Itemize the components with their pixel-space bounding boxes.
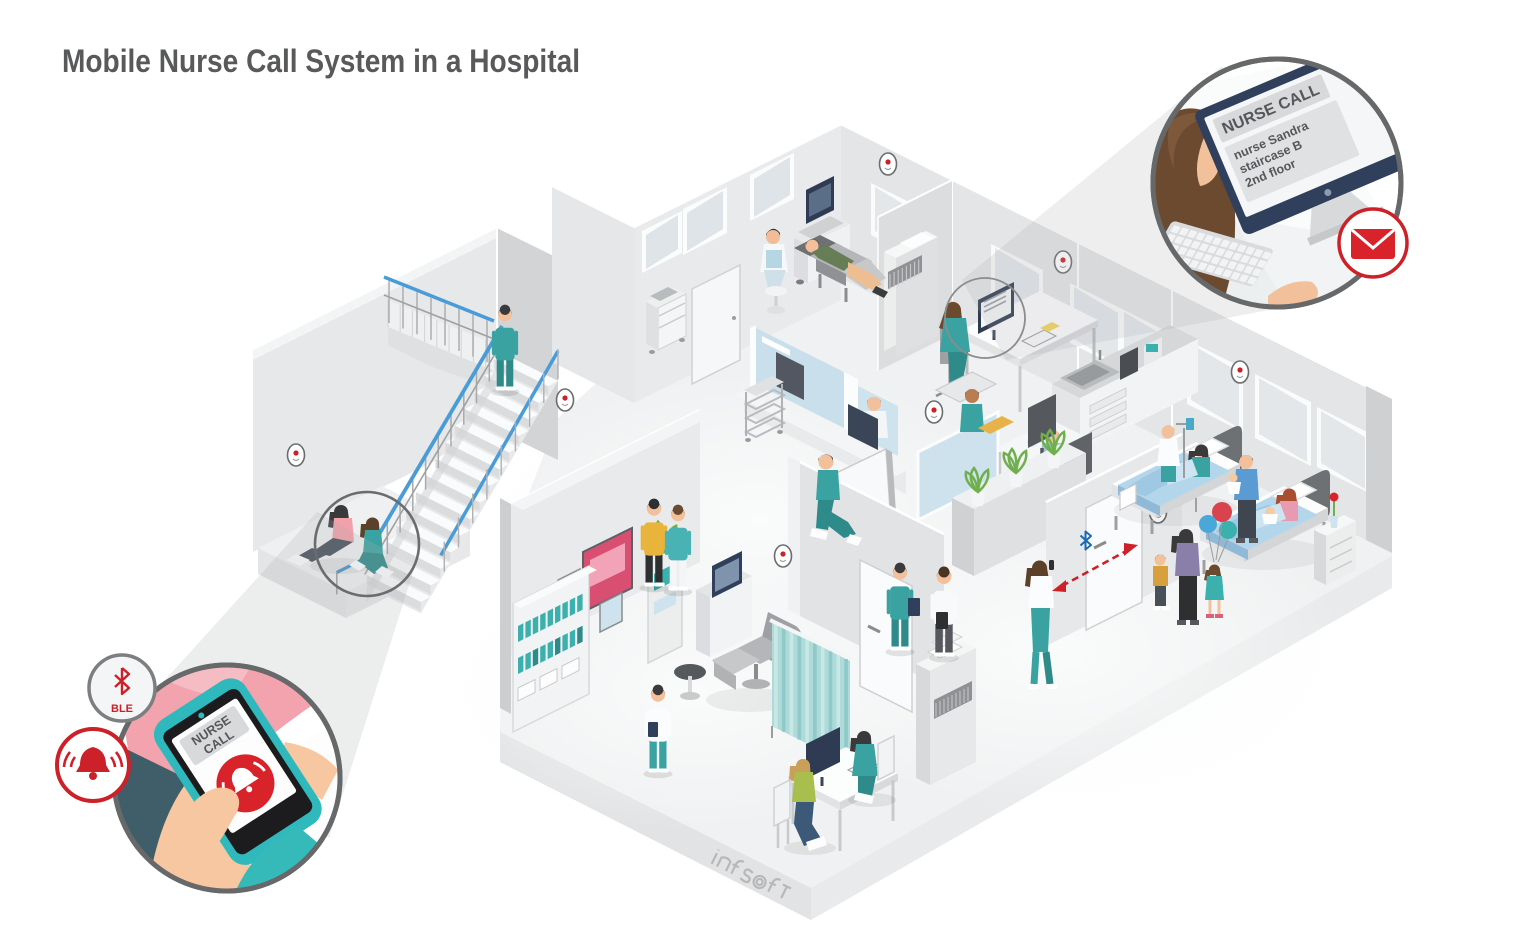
svg-text:Mobile Nurse Call System in a: Mobile Nurse Call System in a Hospital (62, 43, 580, 79)
svg-text:BLE: BLE (111, 703, 133, 715)
